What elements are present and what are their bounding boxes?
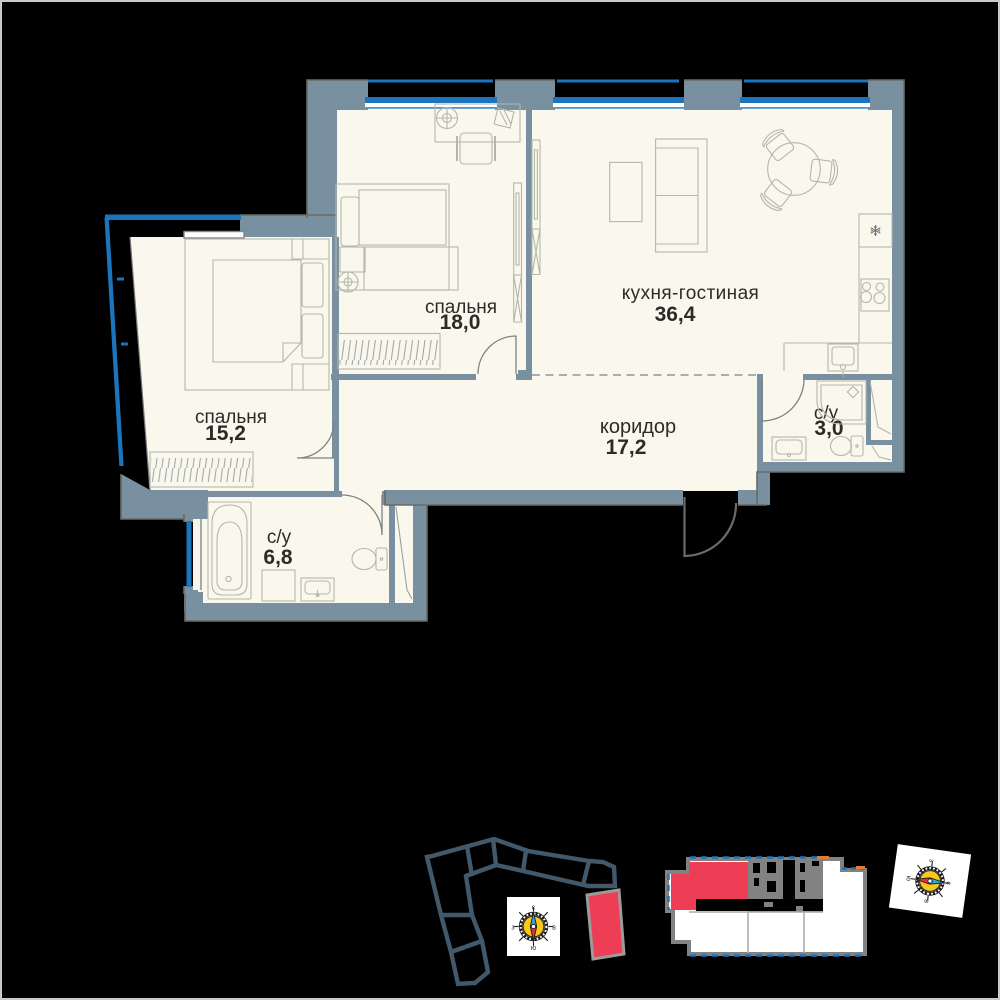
svg-text:36,4: 36,4	[655, 303, 696, 326]
svg-text:17,2: 17,2	[606, 436, 647, 459]
svg-text:18,0: 18,0	[440, 311, 481, 334]
svg-text:с/у: с/у	[267, 527, 292, 548]
svg-text:15,2: 15,2	[205, 422, 246, 445]
svg-text:коридор: коридор	[600, 416, 676, 438]
svg-text:кухня-гостиная: кухня-гостиная	[622, 283, 759, 304]
svg-text:6,8: 6,8	[263, 546, 293, 569]
